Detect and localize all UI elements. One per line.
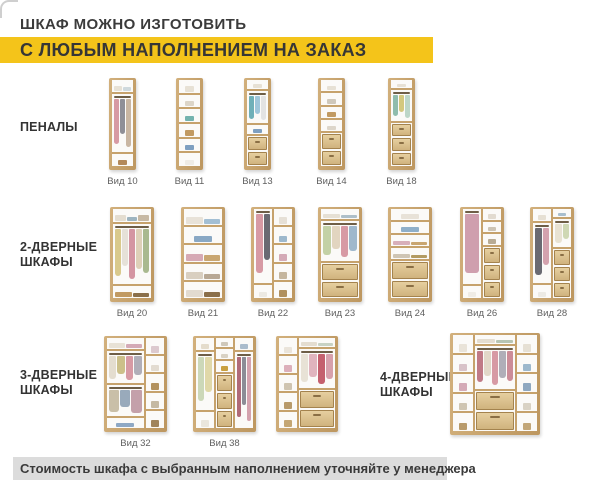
drawer-handle <box>490 286 494 288</box>
garment <box>131 390 141 413</box>
shelf-item <box>523 383 532 390</box>
shelf-items <box>455 359 471 372</box>
drawer-handle <box>560 271 564 273</box>
drawer-handle <box>255 141 259 143</box>
shelf-items <box>186 249 220 261</box>
drawer <box>300 391 334 408</box>
shelf-item <box>523 403 532 410</box>
shelf-section <box>184 282 222 298</box>
footer-note: Стоимость шкафа с выбранным наполнением … <box>13 457 447 480</box>
garment <box>255 96 260 114</box>
cabinet-vid-26 <box>460 207 504 302</box>
garment <box>198 357 204 402</box>
shelf-items <box>276 267 290 279</box>
shelf-section <box>533 209 551 223</box>
shelf-items <box>186 285 220 297</box>
caption-line: ПЕНАЛЫ <box>20 120 78 135</box>
shelf-section <box>146 356 164 374</box>
hanging-clothes <box>535 228 549 283</box>
shelf-items <box>181 127 198 136</box>
wardrobe-interior <box>463 209 501 298</box>
shelf-section <box>483 222 501 235</box>
hanging-rod <box>477 348 513 350</box>
garment <box>507 351 513 381</box>
shelf-section <box>321 209 359 221</box>
garment <box>242 357 246 405</box>
hanging-clothes <box>237 357 251 427</box>
wardrobe-column <box>463 209 481 298</box>
shelf-item <box>126 344 142 347</box>
shelf-items <box>519 359 535 372</box>
shelf-section <box>391 209 429 222</box>
shelf-items <box>281 342 295 354</box>
hanging-rod <box>109 387 142 389</box>
shelf-section <box>184 245 222 263</box>
hanging-section <box>107 351 144 385</box>
cabinet-vid-21 <box>181 207 225 302</box>
cabinet-label-vid-13: Вид 13 <box>223 176 293 187</box>
shelf-items <box>186 267 220 279</box>
hanging-clothes <box>301 354 333 387</box>
shelf-item <box>327 112 336 117</box>
drawer-handle <box>560 254 564 256</box>
shelf-section <box>247 125 268 135</box>
shelf-items <box>393 81 410 87</box>
garment <box>126 356 133 380</box>
shelf-items <box>477 337 513 344</box>
garment <box>134 356 141 376</box>
shelf-item <box>411 242 428 245</box>
garment <box>249 96 254 119</box>
shelf-section <box>553 209 571 219</box>
shelf-item <box>109 343 125 348</box>
wardrobe-interior <box>107 338 164 428</box>
shelf-items <box>281 378 295 390</box>
garment <box>120 99 125 134</box>
cabinet-label-vid-18: Вид 18 <box>367 176 437 187</box>
shelf-items <box>519 378 535 391</box>
garment <box>115 229 121 276</box>
shelf-items <box>181 141 198 150</box>
drawer-handle <box>313 414 321 416</box>
cabinet-vid-18 <box>388 78 415 170</box>
shelf-section <box>321 93 342 106</box>
shelf-item <box>204 292 221 297</box>
drawer-handle <box>560 287 564 289</box>
shelf-items <box>276 213 290 225</box>
shelf-items <box>535 288 549 297</box>
garment <box>205 357 211 392</box>
shelf-section <box>179 124 200 139</box>
wardrobe-interior <box>196 338 253 428</box>
drawer <box>217 411 233 427</box>
hanging-section <box>113 224 151 287</box>
cabinet-label-vid-11: Вид 11 <box>155 176 225 187</box>
shelf-items <box>465 288 479 297</box>
garment <box>535 228 542 275</box>
shelf-item <box>279 290 287 297</box>
garment <box>264 214 271 260</box>
shelf-section <box>279 338 297 356</box>
shelf-item <box>523 423 532 430</box>
shelf-items <box>237 340 251 349</box>
shelf-items <box>148 415 162 427</box>
shelf-item <box>151 383 159 390</box>
wardrobe-column <box>113 209 151 298</box>
drawer-handle <box>223 379 227 381</box>
garment <box>309 354 316 376</box>
shelf-item <box>279 236 287 243</box>
hanging-section <box>321 221 359 263</box>
shelf-item <box>284 347 292 354</box>
shelf-item <box>185 116 194 121</box>
drawer-handle <box>490 252 494 254</box>
garment <box>122 229 128 266</box>
drawer-handle <box>406 266 415 268</box>
shelf-items <box>256 288 270 297</box>
section-caption-2-dvernye: 2-ДВЕРНЫЕШКАФЫ <box>20 240 97 270</box>
garment <box>484 351 490 376</box>
shelf-section <box>483 209 501 222</box>
wardrobe-interior <box>453 335 537 431</box>
shelf-section <box>184 209 222 227</box>
shelf-items <box>148 342 162 354</box>
shelf-items <box>301 340 333 347</box>
shelf-item <box>116 423 134 427</box>
garment <box>477 351 483 382</box>
shelf-item <box>538 215 546 220</box>
hanging-rod <box>555 221 569 223</box>
page-title: ШКАФ МОЖНО ИЗГОТОВИТЬ <box>20 16 246 33</box>
cabinet-vid-28 <box>530 207 574 302</box>
cabinet-label-vid-10: Вид 10 <box>88 176 158 187</box>
shelf-item <box>151 401 159 408</box>
shelf-item <box>459 344 468 351</box>
shelf-section <box>321 120 342 133</box>
shelf-section <box>299 338 335 349</box>
hanging-section <box>196 352 214 412</box>
caption-line: 3-ДВЕРНЫЕ <box>20 368 97 383</box>
drawer <box>392 124 411 136</box>
cabinet-vid-22 <box>251 207 295 302</box>
hanging-section <box>247 91 268 125</box>
shelf-item <box>496 340 514 343</box>
garment <box>129 229 135 279</box>
wardrobe-interior <box>391 209 429 298</box>
shelf-item <box>393 241 410 246</box>
garment <box>261 96 266 120</box>
hanging-rod <box>323 223 357 225</box>
wardrobe-interior <box>113 209 151 298</box>
shelf-items <box>186 231 220 243</box>
hanging-clothes <box>109 356 142 382</box>
shelf-section <box>113 286 151 298</box>
hanging-rod <box>114 96 131 98</box>
hanging-clothes <box>393 95 410 120</box>
shelf-section <box>216 349 234 361</box>
shelf-section <box>254 285 272 298</box>
shelf-section <box>517 374 537 394</box>
drawer <box>300 410 334 427</box>
garment <box>341 226 349 258</box>
shelf-item <box>284 365 292 372</box>
shelf-item <box>393 254 410 259</box>
hanging-rod <box>249 93 266 95</box>
hanging-clothes <box>465 214 479 283</box>
shelf-items <box>181 83 198 92</box>
drawer <box>248 137 267 150</box>
shelf-item <box>186 217 203 224</box>
shelf-items <box>148 396 162 408</box>
wardrobe-column <box>254 209 272 298</box>
shelf-section <box>453 355 473 375</box>
shelf-section <box>274 282 292 298</box>
drawer <box>392 262 428 278</box>
shelf-items <box>393 250 427 258</box>
shelf-section <box>216 361 234 374</box>
shelf-section <box>391 80 412 90</box>
wardrobe-interior <box>321 80 342 166</box>
shelf-item <box>185 160 194 165</box>
shelf-items <box>485 211 499 219</box>
drawer-handle <box>329 155 333 157</box>
shelf-items <box>455 417 471 430</box>
cabinet-3-dver-3 <box>276 336 338 432</box>
shelf-items <box>281 360 295 372</box>
wardrobe-interior <box>391 80 412 166</box>
shelf-section <box>475 335 515 346</box>
drawer-handle <box>336 286 345 288</box>
shelf-item <box>115 292 132 297</box>
shelf-section <box>146 393 164 411</box>
garment <box>393 95 398 116</box>
wardrobe-interior <box>533 209 571 298</box>
shelf-section <box>453 413 473 431</box>
wardrobe-interior <box>247 80 268 166</box>
cabinet-4-dver-1 <box>450 333 540 435</box>
garment <box>349 226 357 251</box>
wardrobe-column <box>144 338 164 428</box>
hanging-rod <box>301 351 333 353</box>
shelf-item <box>284 420 292 427</box>
shelf-items <box>455 378 471 391</box>
shelf-item <box>397 84 406 87</box>
shelf-items <box>198 415 212 427</box>
shelf-section <box>196 338 214 352</box>
drawer <box>484 282 500 297</box>
shelf-section <box>184 264 222 282</box>
garment <box>136 229 142 269</box>
hanging-clothes <box>115 229 149 284</box>
wardrobe-column <box>247 80 268 166</box>
garment <box>109 356 116 379</box>
drawer <box>554 250 570 264</box>
shelf-item <box>185 101 194 106</box>
drawer <box>554 283 570 297</box>
hanging-section <box>235 352 253 428</box>
shelf-item <box>114 86 122 91</box>
cabinet-label-vid-14: Вид 14 <box>297 176 367 187</box>
drawer-handle <box>399 142 403 144</box>
shelf-items <box>281 415 295 427</box>
shelf-items <box>114 82 131 91</box>
card-corner-border <box>0 0 18 18</box>
shelf-item <box>204 219 221 224</box>
shelf-section <box>391 235 429 248</box>
shelf-item <box>323 214 340 218</box>
shelf-items <box>393 237 427 245</box>
shelf-items <box>281 397 295 409</box>
garment <box>555 224 562 243</box>
wardrobe-column <box>533 209 551 298</box>
drawer-handle <box>329 138 333 140</box>
shelf-item <box>186 254 203 261</box>
wardrobe-column <box>473 335 515 431</box>
cabinet-vid-13 <box>244 78 271 170</box>
shelf-items <box>115 212 149 221</box>
hanging-section <box>299 349 335 390</box>
shelf-item <box>401 227 420 232</box>
shelf-items <box>323 82 340 90</box>
shelf-section <box>274 209 292 227</box>
cabinet-label-vid-38: Вид 38 <box>190 438 260 449</box>
cabinet-label-vid-28: Вид 28 <box>517 308 587 319</box>
shelf-items <box>485 224 499 232</box>
drawer <box>322 151 341 165</box>
cabinet-vid-38 <box>193 336 256 432</box>
shelf-section <box>179 80 200 95</box>
shelf-items <box>249 127 266 133</box>
drawer <box>248 152 267 165</box>
shelf-item <box>253 84 262 88</box>
shelf-item <box>301 342 317 346</box>
hanging-section <box>254 209 272 285</box>
hanging-rod <box>256 211 270 213</box>
hanging-section <box>533 223 551 286</box>
shelf-item <box>459 364 468 371</box>
shelf-section <box>184 227 222 245</box>
shelf-item <box>138 215 149 221</box>
shelf-items <box>181 112 198 121</box>
wardrobe-column <box>391 209 429 298</box>
shelf-item <box>194 236 213 243</box>
shelf-section <box>235 338 253 352</box>
drawer-handle <box>399 157 403 159</box>
caption-line: 4-ДВЕРНЫЕ <box>380 370 457 385</box>
garment <box>237 357 241 417</box>
cabinet-label-vid-22: Вид 22 <box>238 308 308 319</box>
garment <box>301 354 308 382</box>
shelf-items <box>393 224 427 232</box>
shelf-items <box>519 417 535 430</box>
drawer-handle <box>255 156 259 158</box>
shelf-item <box>151 365 159 372</box>
wardrobe-column <box>179 80 200 166</box>
wardrobe-catalog-poster: ШКАФ МОЖНО ИЗГОТОВИТЬ С ЛЮБЫМ НАПОЛНЕНИЕ… <box>0 0 600 500</box>
drawer <box>484 248 500 263</box>
shelf-item <box>411 255 428 258</box>
garment <box>399 95 404 112</box>
cabinet-label-vid-21: Вид 21 <box>168 308 238 319</box>
wardrobe-column <box>214 338 234 428</box>
shelf-section <box>517 413 537 431</box>
shelf-item <box>185 86 194 91</box>
shelf-section <box>146 338 164 356</box>
garment <box>465 214 479 273</box>
wardrobe-column <box>233 338 253 428</box>
shelf-section <box>274 264 292 282</box>
drawer <box>392 281 428 297</box>
subtitle-text: С ЛЮБЫМ НАПОЛНЕНИЕМ НА ЗАКАЗ <box>20 40 367 61</box>
shelf-item <box>477 339 495 343</box>
shelf-section <box>279 412 297 428</box>
shelf-section <box>517 335 537 355</box>
garment <box>109 390 119 411</box>
shelf-item <box>488 239 496 243</box>
shelf-items <box>249 82 266 88</box>
shelf-item <box>279 254 287 261</box>
cabinet-vid-10 <box>109 78 136 170</box>
shelf-item <box>327 126 336 131</box>
shelf-item <box>201 420 209 427</box>
wardrobe-column <box>297 338 335 428</box>
shelf-item <box>488 227 496 231</box>
shelf-item <box>284 402 292 409</box>
shelf-item <box>341 215 358 218</box>
drawer-handle <box>490 269 494 271</box>
cabinet-vid-11 <box>176 78 203 170</box>
shelf-items <box>455 398 471 411</box>
shelf-section <box>146 411 164 428</box>
wardrobe-column <box>196 338 214 428</box>
hanging-clothes <box>477 351 513 388</box>
garment <box>499 351 505 378</box>
shelf-item <box>151 346 159 353</box>
shelf-section <box>279 356 297 374</box>
shelf-section <box>113 209 151 224</box>
hanging-section <box>391 90 412 123</box>
shelf-item <box>459 403 468 410</box>
garment <box>323 226 331 256</box>
shelf-section <box>247 80 268 91</box>
shelf-section <box>279 393 297 411</box>
caption-line: ШКАФЫ <box>380 385 457 400</box>
shelf-item <box>259 292 267 297</box>
shelf-item <box>523 364 532 371</box>
drawer-handle <box>490 416 499 418</box>
garment <box>405 95 410 118</box>
cabinet-label-vid-24: Вид 24 <box>375 308 445 319</box>
garment <box>117 356 124 374</box>
wardrobe-interior <box>179 80 200 166</box>
hanging-section <box>112 94 133 154</box>
garment <box>120 390 130 407</box>
garment <box>143 229 149 274</box>
shelf-item <box>186 272 203 279</box>
drawer <box>322 134 341 148</box>
shelf-item <box>204 274 221 279</box>
shelf-section <box>517 394 537 414</box>
shelf-section <box>179 109 200 124</box>
hanging-clothes <box>555 224 569 247</box>
shelf-items <box>519 398 535 411</box>
hanging-section <box>463 209 481 286</box>
shelf-items <box>276 231 290 243</box>
cabinet-vid-23 <box>318 207 362 302</box>
garment <box>326 354 333 378</box>
shelf-section <box>112 154 133 166</box>
shelf-item <box>185 145 194 150</box>
